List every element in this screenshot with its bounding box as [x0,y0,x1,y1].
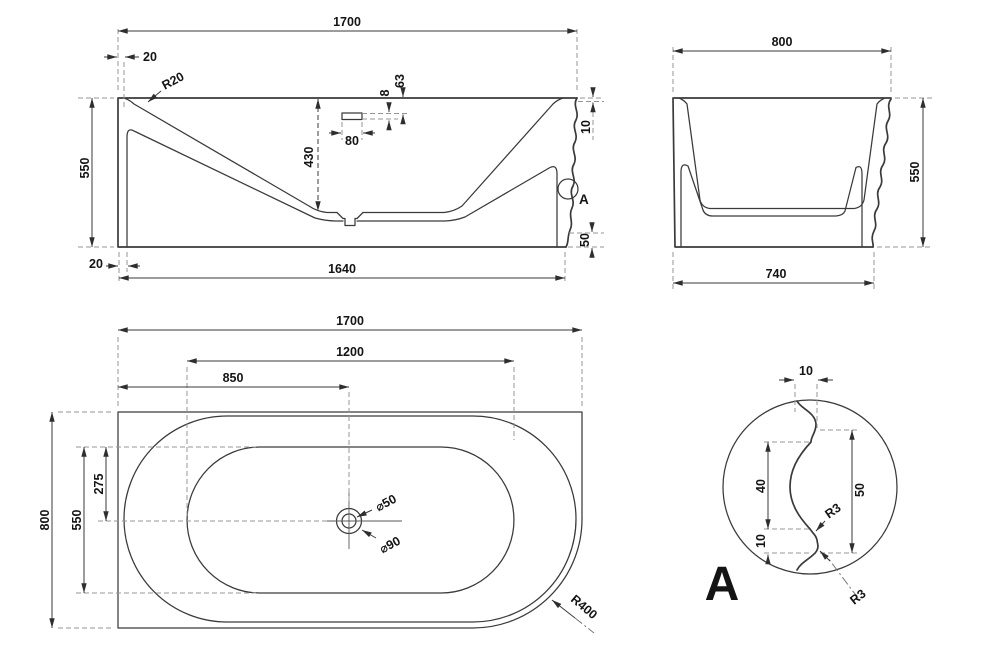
detail-a-marker-circle [558,179,578,199]
front-view: A 1700 20 R20 8 63 80 430 550 [78,15,604,284]
side-dim-height: 550 [908,162,922,183]
plan-basin-contour [187,447,514,593]
front-dim-bottom-offset: 20 [89,257,103,271]
front-dim-corner-radius: R20 [160,69,187,92]
plan-dim-drain-from-left: 850 [223,371,244,385]
detail-boundary-circle [723,400,897,574]
plan-dim-drain-from-back: 275 [92,474,106,495]
detail-dim-upper-height: 40 [754,479,768,493]
front-dim-inner-depth: 430 [302,147,316,168]
detail-label: A [705,558,740,611]
plan-dim-drain-inner: ⌀50 [373,492,399,514]
side-outline [673,98,891,247]
plan-dim-depth: 800 [38,510,52,531]
detail-dim-fillet-2: R3 [847,587,868,608]
front-dim-ripple-offset: 10 [579,120,593,134]
front-dim-overflow-depth: 63 [393,74,407,88]
front-dim-rim-offset: 20 [143,50,157,64]
drawing-svg: A 1700 20 R20 8 63 80 430 550 [0,0,1000,659]
side-view: 800 550 740 [673,35,933,289]
front-shell-right-foot [357,167,557,247]
detail-dim-lower-height: 10 [754,534,768,548]
plan-view: ⌀50 ⌀90 R400 1700 1200 850 800 550 275 [38,314,600,633]
side-dim-width-top: 800 [772,35,793,49]
detail-dim-total-height: 50 [853,483,867,497]
plan-dim-corner-radius: R400 [568,592,600,622]
side-basin-wall-right [718,98,885,209]
front-overflow-slot [342,113,362,120]
front-basin-wall-right [363,98,563,213]
front-dim-overflow-height: 8 [378,89,392,96]
front-drain-recess [337,213,363,226]
plan-dim-drain-outer: ⌀90 [377,534,403,556]
detail-a-marker-label: A [579,192,589,207]
detail-dim-fillet-1: R3 [822,501,843,522]
front-dim-plinth-height: 50 [578,233,592,247]
plan-dim-basin-width: 550 [70,510,84,531]
technical-drawing-bathtub: A 1700 20 R20 8 63 80 430 550 [0,0,1000,659]
front-outline [118,98,577,247]
front-dim-width-bottom: 1640 [328,262,356,276]
detail-profile [790,401,818,570]
plan-dim-width-top: 1700 [336,314,364,328]
detail-dim-offset-top: 10 [799,364,813,378]
side-shell-right-foot [712,167,862,247]
detail-view-a: 10 40 10 50 R3 R3 A [705,364,897,611]
side-basin-wall-left [679,98,718,209]
plan-dim-basin-length: 1200 [336,345,364,359]
front-dim-width-top: 1700 [333,15,361,29]
front-ripple-edge [566,98,577,247]
side-dim-width-bottom: 740 [766,267,787,281]
front-dim-height: 550 [78,158,92,179]
front-dim-overflow-width: 80 [345,134,359,148]
